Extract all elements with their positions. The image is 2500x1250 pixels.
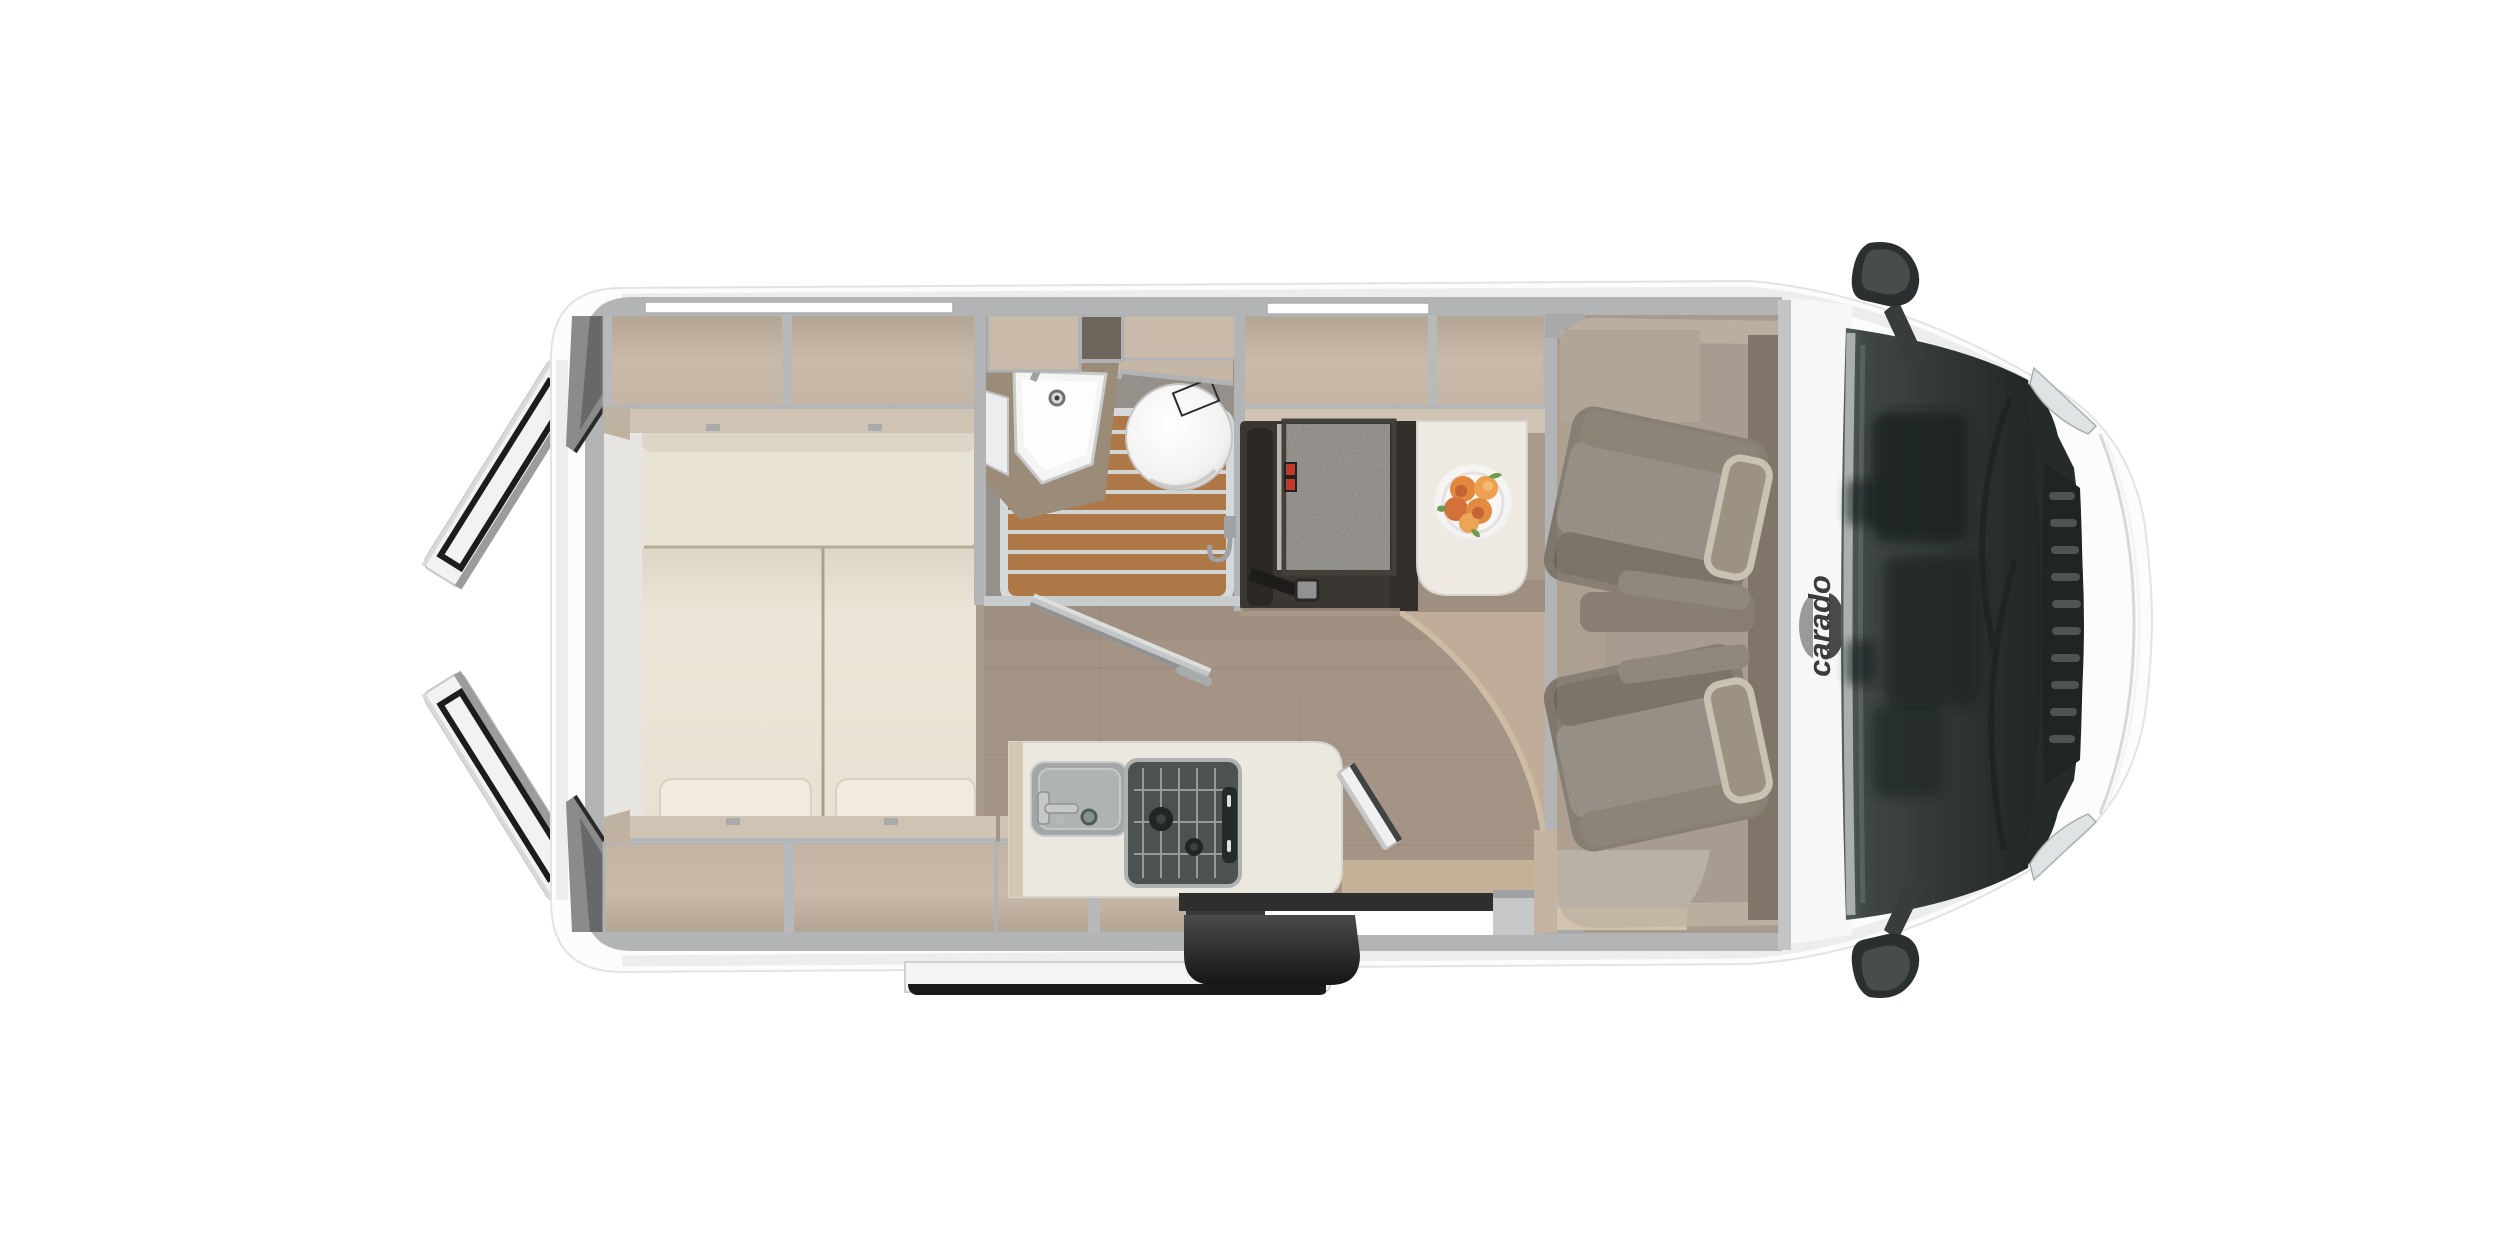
svg-text:carado: carado	[1802, 575, 1837, 677]
